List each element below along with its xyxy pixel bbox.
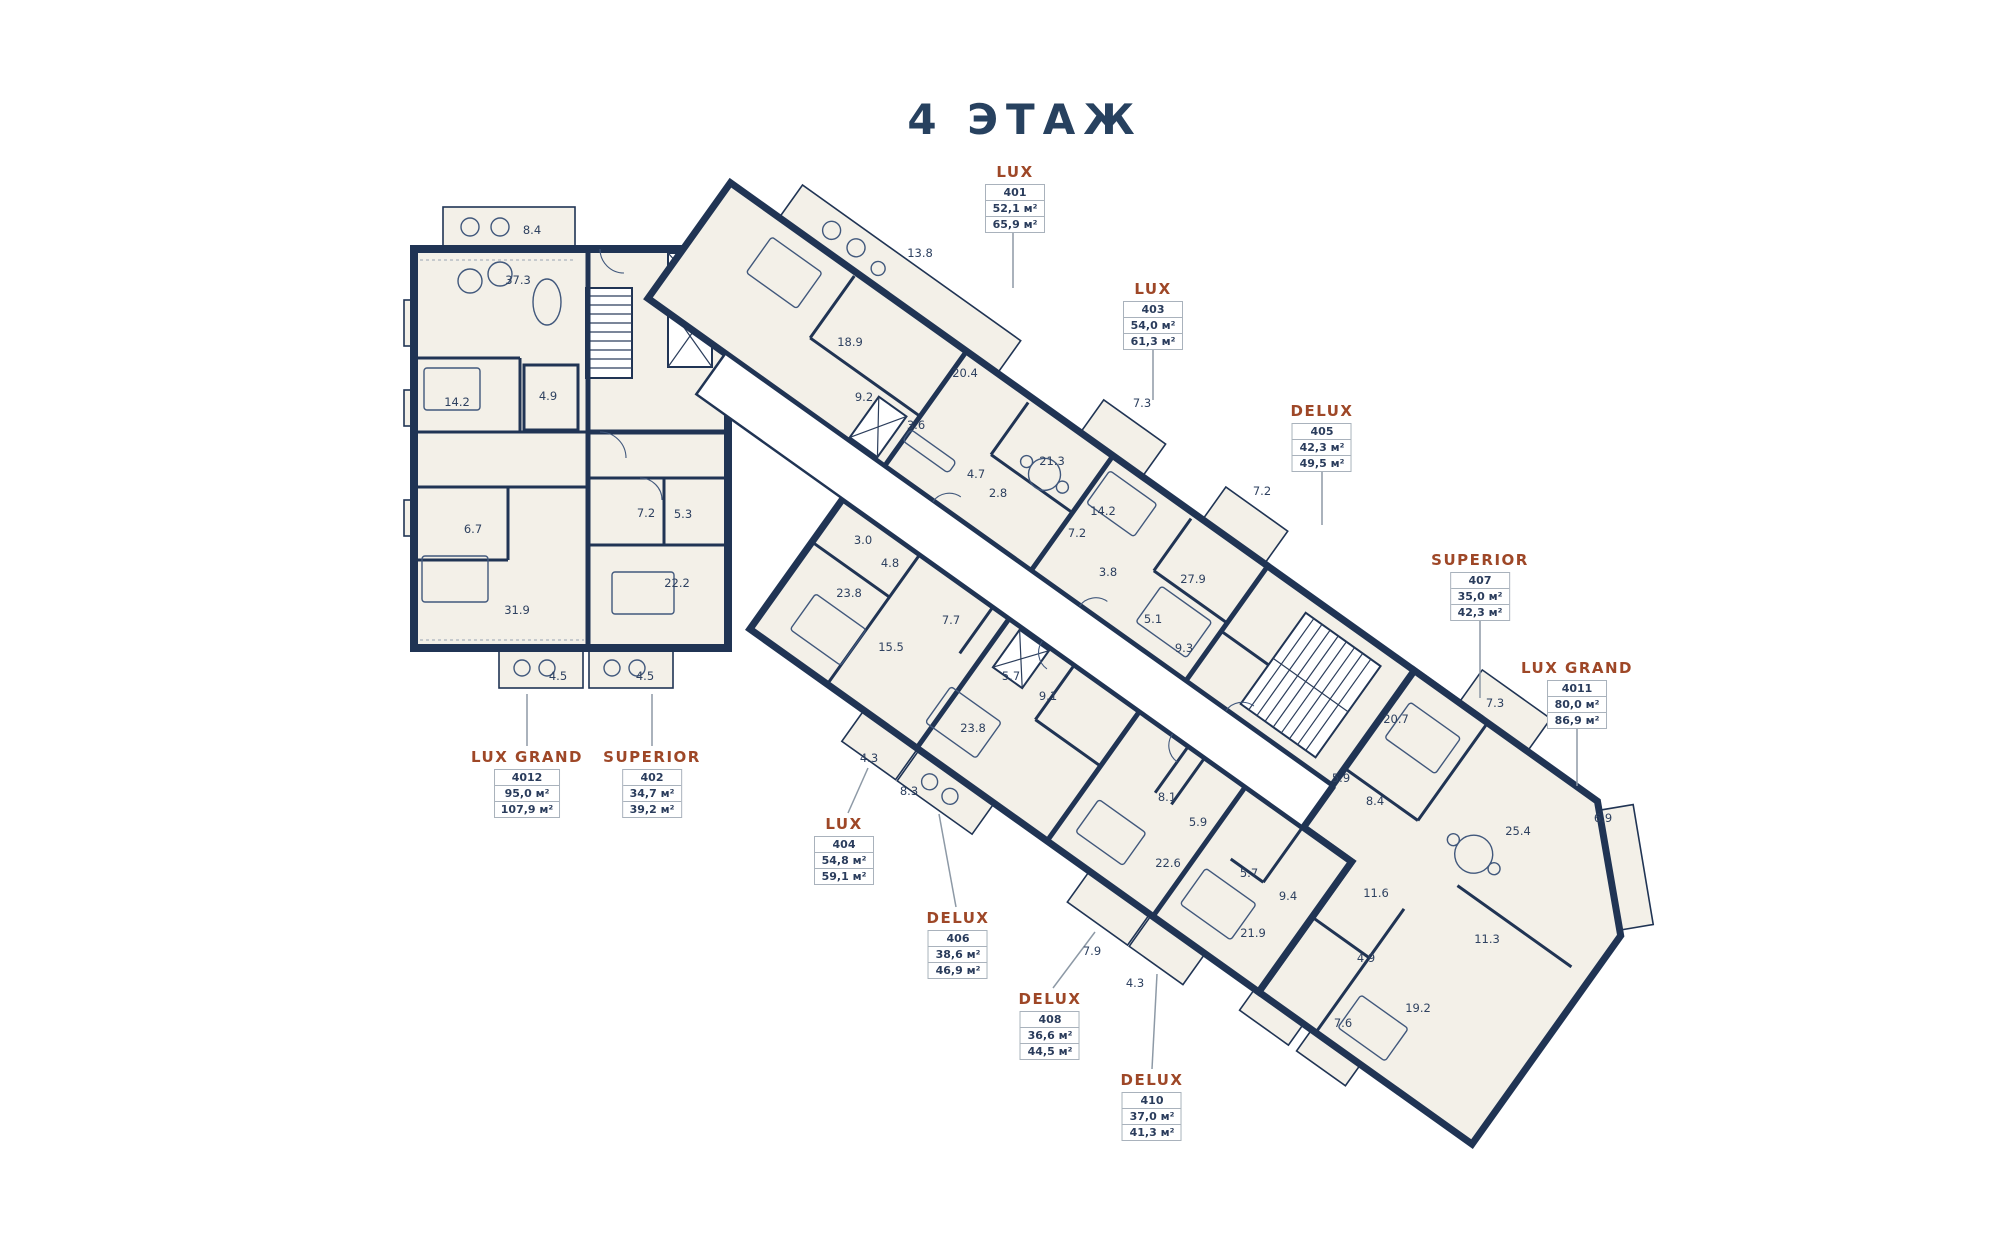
unit-area-living: 34,7 м² [623,785,681,801]
room-area-label: 5.7 [1002,669,1020,683]
room-area-label: 6.9 [1594,811,1612,825]
room-area-label: 22.6 [1155,856,1181,870]
room-area-label: 5.3 [674,507,692,521]
unit-type: DELUX [927,909,990,927]
room-area-label: 13.8 [907,246,933,260]
unit-label-401: LUX40152,1 м²65,9 м² [985,163,1045,233]
unit-label-4011: LUX GRAND401180,0 м²86,9 м² [1521,659,1633,729]
room-area-label: 14.2 [444,395,470,409]
room-area-label: 14.2 [1090,504,1116,518]
unit-area-living: 54,8 м² [815,852,873,868]
room-area-label: 4.3 [1126,976,1144,990]
unit-label-407: SUPERIOR40735,0 м²42,3 м² [1431,551,1529,621]
unit-label-406: DELUX40638,6 м²46,9 м² [927,909,990,979]
leader-line-406 [939,814,956,907]
room-area-label: 3.6 [907,418,925,432]
unit-label-402: SUPERIOR40234,7 м²39,2 м² [603,748,701,818]
leader-line-404 [848,768,868,813]
unit-type: LUX GRAND [1521,659,1633,677]
leader-line-410 [1152,974,1157,1069]
room-area-label: 5.7 [1240,866,1258,880]
room-area-label: 31.9 [504,603,530,617]
room-area-label: 4.7 [967,467,985,481]
room-area-label: 7.6 [1334,1016,1352,1030]
unit-area-living: 42,3 м² [1293,439,1351,455]
room-area-label: 4.9 [1357,951,1375,965]
room-area-label: 9.1 [1039,689,1057,703]
unit-number: 410 [1123,1093,1181,1108]
unit-label-405: DELUX40542,3 м²49,5 м² [1291,402,1354,472]
unit-area-total: 46,9 м² [929,962,987,978]
unit-area-total: 44,5 м² [1021,1043,1079,1059]
unit-label-404: LUX40454,8 м²59,1 м² [814,815,874,885]
unit-area-total: 41,3 м² [1123,1124,1181,1140]
unit-info-box: 40234,7 м²39,2 м² [622,769,682,818]
unit-area-living: 95,0 м² [495,785,559,801]
room-area-label: 4.5 [549,669,567,683]
room-area-label: 25.4 [1505,824,1531,838]
unit-info-box: 40735,0 м²42,3 м² [1450,572,1510,621]
unit-info-box: 40836,6 м²44,5 м² [1020,1011,1080,1060]
unit-info-box: 40454,8 м²59,1 м² [814,836,874,885]
room-area-label: 9.3 [1175,641,1193,655]
room-area-label: 8.3 [900,784,918,798]
room-area-label: 11.6 [1363,886,1389,900]
room-area-label: 6.7 [464,522,482,536]
room-area-label: 8.4 [1366,794,1384,808]
unit-info-box: 40638,6 м²46,9 м² [928,930,988,979]
unit-info-box: 401180,0 м²86,9 м² [1547,680,1607,729]
room-area-label: 19.2 [1405,1001,1431,1015]
room-area-label: 7.3 [1133,396,1151,410]
unit-number: 4012 [495,770,559,785]
unit-area-living: 35,0 м² [1451,588,1509,604]
room-area-label: 21.9 [1240,926,1266,940]
unit-number: 407 [1451,573,1509,588]
unit-label-410: DELUX41037,0 м²41,3 м² [1121,1071,1184,1141]
unit-number: 402 [623,770,681,785]
room-area-label: 15.5 [878,640,904,654]
unit-area-living: 54,0 м² [1124,317,1182,333]
room-area-label: 7.2 [1068,526,1086,540]
room-area-label: 9.4 [1279,889,1297,903]
unit-area-total: 61,3 м² [1124,333,1182,349]
unit-type: DELUX [1121,1071,1184,1089]
room-area-label: 23.8 [960,721,986,735]
unit-area-total: 42,3 м² [1451,604,1509,620]
unit-area-total: 86,9 м² [1548,712,1606,728]
room-area-label: 3.0 [854,533,872,547]
unit-number: 4011 [1548,681,1606,696]
room-area-label: 5.1 [1144,612,1162,626]
staircase [586,288,632,378]
unit-info-box: 40152,1 м²65,9 м² [985,184,1045,233]
room-area-label: 20.7 [1383,712,1409,726]
room-area-label: 7.2 [637,506,655,520]
unit-info-box: 41037,0 м²41,3 м² [1122,1092,1182,1141]
room-area-label: 5.9 [1189,815,1207,829]
unit-number: 401 [986,185,1044,200]
unit-info-box: 401295,0 м²107,9 м² [494,769,560,818]
unit-area-total: 107,9 м² [495,801,559,817]
room-area-label: 18.9 [837,335,863,349]
room-area-label: 21.3 [1039,454,1065,468]
unit-type: LUX [1123,280,1183,298]
room-area-label: 9.2 [855,390,873,404]
unit-info-box: 40542,3 м²49,5 м² [1292,423,1352,472]
unit-number: 406 [929,931,987,946]
room-area-label: 3.8 [1099,565,1117,579]
room-area-label: 27.9 [1180,572,1206,586]
room-area-label: 4.9 [539,389,557,403]
unit-area-total: 39,2 м² [623,801,681,817]
unit-number: 405 [1293,424,1351,439]
unit-label-408: DELUX40836,6 м²44,5 м² [1019,990,1082,1060]
unit-area-total: 49,5 м² [1293,455,1351,471]
unit-label-403: LUX40354,0 м²61,3 м² [1123,280,1183,350]
room-area-label: 11.3 [1474,932,1500,946]
unit-info-box: 40354,0 м²61,3 м² [1123,301,1183,350]
room-area-label: 4.3 [860,751,878,765]
floorplan-page: 4 ЭТАЖ [0,0,2000,1252]
room-area-label: 5.9 [1332,771,1350,785]
room-area-label: 4.8 [881,556,899,570]
room-area-label: 7.2 [1253,484,1271,498]
unit-type: LUX GRAND [471,748,583,766]
unit-area-living: 38,6 м² [929,946,987,962]
unit-label-4012: LUX GRAND401295,0 м²107,9 м² [471,748,583,818]
unit-area-living: 37,0 м² [1123,1108,1181,1124]
unit-number: 403 [1124,302,1182,317]
room-area-label: 23.8 [836,586,862,600]
room-area-label: 22.2 [664,576,690,590]
balcony-outline [499,650,583,688]
room-area-label: 2.8 [989,486,1007,500]
unit-type: SUPERIOR [1431,551,1529,569]
balcony-outline [589,650,673,688]
unit-area-total: 59,1 м² [815,868,873,884]
unit-area-living: 80,0 м² [1548,696,1606,712]
room-area-label: 20.4 [952,366,978,380]
room-area-label: 8.1 [1158,790,1176,804]
unit-type: SUPERIOR [603,748,701,766]
unit-area-living: 52,1 м² [986,200,1044,216]
unit-type: DELUX [1291,402,1354,420]
unit-type: LUX [985,163,1045,181]
room-area-label: 7.9 [1083,944,1101,958]
unit-area-total: 65,9 м² [986,216,1044,232]
unit-type: DELUX [1019,990,1082,1008]
unit-area-living: 36,6 м² [1021,1027,1079,1043]
room-area-label: 7.3 [1486,696,1504,710]
unit-type: LUX [814,815,874,833]
room-area-label: 7.7 [942,613,960,627]
room-area-label: 8.4 [523,223,541,237]
room-area-label: 37.3 [505,273,531,287]
room-area-label: 4.5 [636,669,654,683]
leader-line-408 [1053,932,1095,988]
unit-number: 404 [815,837,873,852]
unit-number: 408 [1021,1012,1079,1027]
